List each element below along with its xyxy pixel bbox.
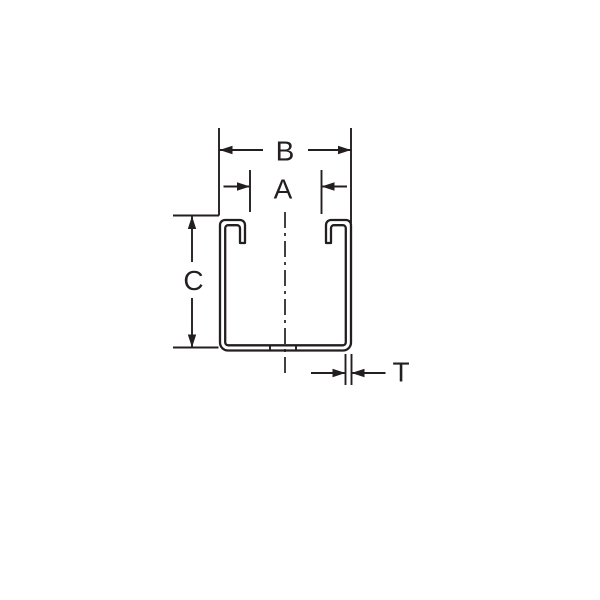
b-arrowhead-right-icon <box>338 146 351 154</box>
b-arrowhead-left-icon <box>220 146 233 154</box>
dimension-label-c: C <box>183 265 203 296</box>
a-arrowhead-left-icon <box>237 182 250 190</box>
t-arrowhead-left-icon <box>333 369 346 377</box>
dimension-label-b: B <box>276 136 295 167</box>
dimension-label-a: A <box>274 174 293 205</box>
dimension-label-t: T <box>392 357 409 388</box>
t-arrowhead-right-icon <box>352 369 365 377</box>
a-arrowhead-right-icon <box>322 182 335 190</box>
dimension-a: A <box>224 170 348 214</box>
c-arrowhead-down-icon <box>188 335 196 348</box>
dimension-t: T <box>311 354 410 388</box>
diagram-canvas: B A C T <box>0 0 600 600</box>
strut-channel-drawing: B A C T <box>0 0 600 600</box>
dimension-c: C <box>173 216 219 348</box>
c-arrowhead-up-icon <box>188 216 196 229</box>
